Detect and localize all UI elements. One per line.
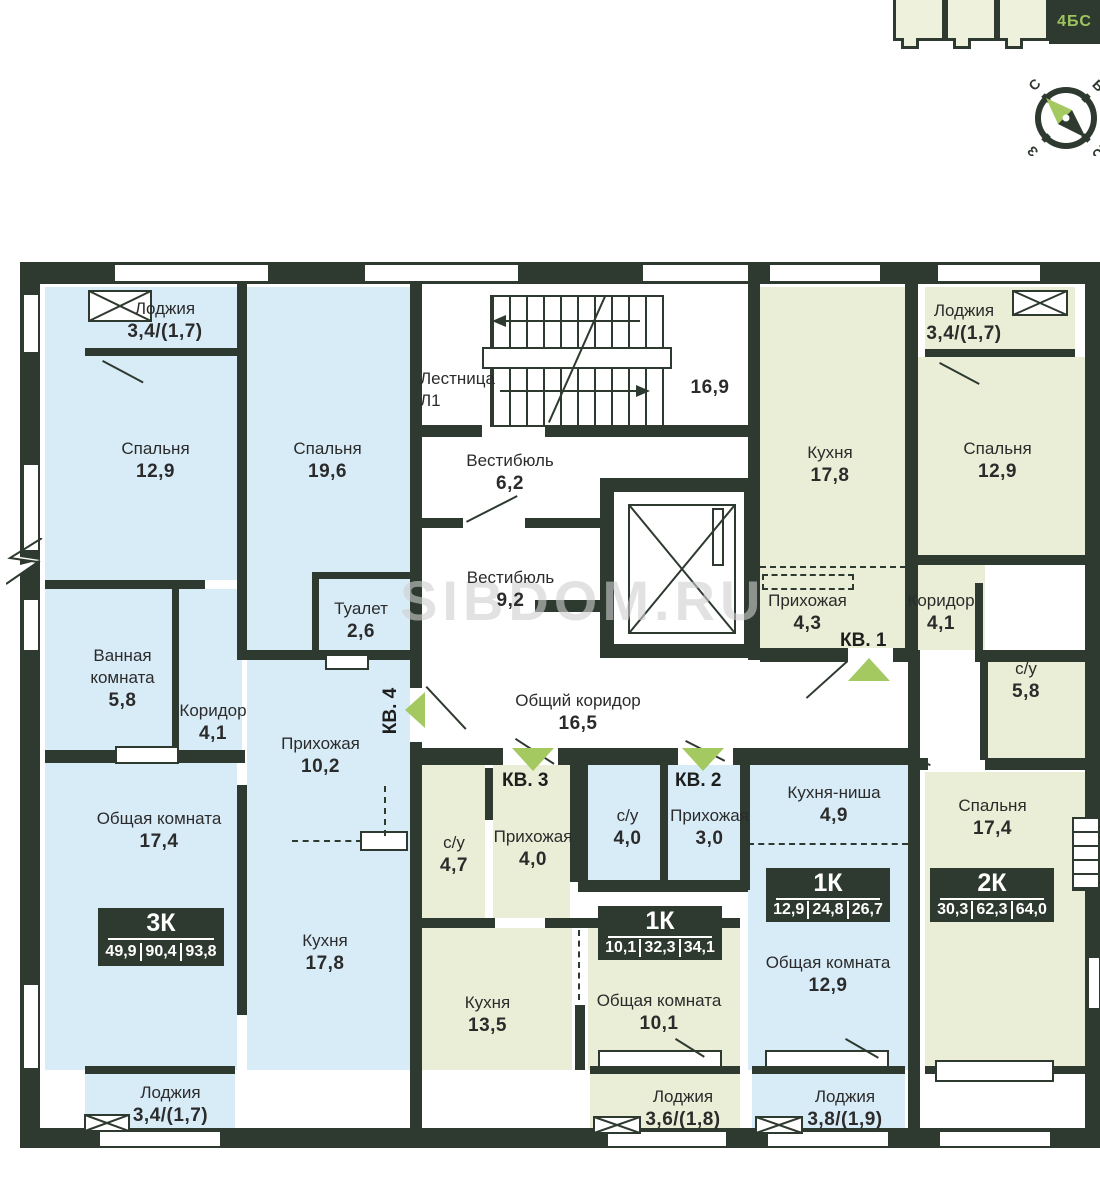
room-label: Туалет2,6 — [315, 598, 407, 645]
room-label: Спальня19,6 — [255, 438, 400, 485]
keyplan-active-section: 4БС — [1049, 0, 1100, 44]
compass-south-label: Ю — [1089, 142, 1100, 156]
window-sill — [935, 1060, 1054, 1082]
compass-north-label: С — [1026, 75, 1044, 93]
keyplan-section — [945, 0, 997, 41]
compass-west-label: З — [1026, 143, 1041, 156]
room-label: ЛестницаЛ1 — [420, 368, 500, 412]
room-label: Ванная комната5,8 — [70, 645, 175, 714]
building-keyplan: 4БС — [893, 0, 1100, 50]
entry-label-kv3: КВ. 3 — [502, 770, 548, 792]
entry-label-kv4: КВ. 4 — [380, 688, 402, 734]
wall-break-symbol — [6, 538, 46, 586]
room-label: Коридор4,1 — [163, 700, 263, 747]
room-label: Прихожая3,0 — [662, 805, 757, 852]
room-label: Спальня17,4 — [920, 795, 1065, 842]
floorplan-page: 4БС С В З Ю — [0, 0, 1100, 1200]
compass-east-label: В — [1089, 76, 1100, 94]
room-label: Лоджия3,4/(1,7) — [98, 1082, 243, 1129]
room-label: с/у4,0 — [590, 805, 665, 852]
room-label: с/у4,7 — [418, 832, 490, 879]
room-label: Коридор4,1 — [893, 590, 989, 637]
wall-outer-right — [1085, 262, 1100, 1148]
room-label: Прихожая4,0 — [490, 826, 576, 873]
apartment-badge-1k-kv3: 1К 10,132,334,1 — [598, 906, 722, 960]
apartment-badge-1k-kv2: 1К 12,924,826,7 — [766, 868, 890, 922]
balcony-ladder — [1072, 817, 1100, 891]
room-label: Спальня12,9 — [88, 438, 223, 485]
room-label: Прихожая10,2 — [253, 733, 388, 780]
room-label: Общая комната17,4 — [78, 808, 240, 855]
room-label: Общая комната10,1 — [578, 990, 740, 1037]
room-label: Общая комната12,9 — [748, 952, 908, 999]
keyplan-section — [893, 0, 945, 41]
room-label: Лоджия3,8/(1,9) — [780, 1086, 910, 1133]
entry-arrow-kv4 — [405, 692, 425, 728]
room-label: Лоджия3,4/(1,7) — [893, 300, 1035, 347]
apartment-badge-3k: 3К 49,990,493,8 — [98, 908, 224, 966]
room-label: Кухня-ниша4,9 — [763, 782, 905, 829]
keyplan-section-label: 4БС — [1057, 13, 1092, 31]
room-label: с/у5,8 — [980, 658, 1072, 705]
room-label: Кухня17,8 — [255, 930, 395, 977]
keyplan-section — [997, 0, 1049, 41]
room-label: Лоджия3,6/(1,8) — [618, 1086, 748, 1133]
room-label: Общий коридор16,5 — [488, 690, 668, 737]
room-label: Лоджия3,4/(1,7) — [95, 298, 235, 345]
compass-icon: С В З Ю — [1026, 72, 1100, 156]
entry-label-kv2: КВ. 2 — [675, 770, 721, 792]
room-label: Кухня17,8 — [755, 442, 905, 489]
entry-arrow-kv1 — [848, 658, 890, 681]
entry-arrow-kv2 — [682, 748, 724, 771]
room-label: Вестибюль6,2 — [445, 450, 575, 497]
elevator-shaft — [600, 478, 758, 492]
entry-arrow-kv3 — [512, 748, 554, 771]
room-label: 16,9 — [680, 376, 740, 401]
room-label: Спальня12,9 — [925, 438, 1070, 485]
entry-label-kv1: КВ. 1 — [840, 630, 886, 652]
apartment-badge-2k: 2К 30,362,364,0 — [930, 868, 1054, 922]
room-label: Кухня13,5 — [420, 992, 555, 1039]
room-label: Вестибюль9,2 — [448, 567, 573, 614]
